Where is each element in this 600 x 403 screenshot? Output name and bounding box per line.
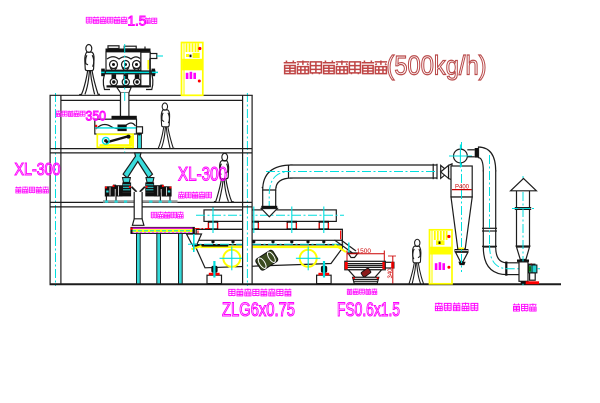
svg-text:XL-300: XL-300: [178, 165, 227, 186]
svg-text:1500: 1500: [357, 248, 372, 255]
svg-text:1.5: 1.5: [128, 14, 147, 29]
svg-text:350: 350: [86, 109, 107, 124]
svg-text:P400: P400: [455, 185, 470, 191]
svg-text:XL-300: XL-300: [15, 159, 61, 179]
svg-text:(500kg/h): (500kg/h): [387, 51, 487, 81]
svg-text:340: 340: [388, 268, 394, 279]
svg-text:FS0.6x1.5: FS0.6x1.5: [337, 300, 400, 321]
svg-text:ZLG6x0.75: ZLG6x0.75: [222, 300, 295, 321]
